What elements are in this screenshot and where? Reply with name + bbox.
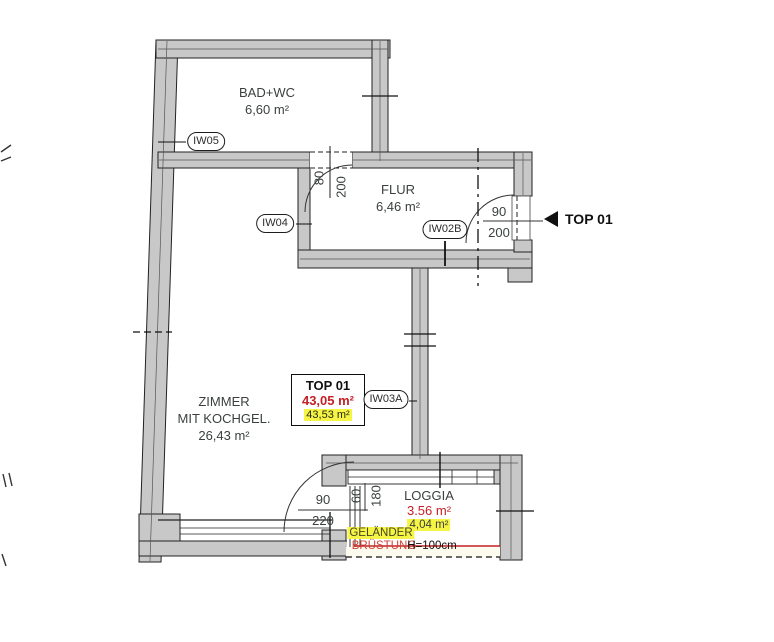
dim-entry-door-width: 90 — [492, 203, 506, 220]
edge-artifact — [1, 145, 12, 566]
wall-flur-left — [298, 168, 310, 252]
wall-tag-iw03a: IW03A — [363, 390, 408, 409]
room-name: LOGGIA — [404, 488, 454, 503]
wall-entry-step — [508, 268, 532, 282]
room-name: FLUR — [376, 181, 420, 198]
floor-plan: BAD+WC 6,60 m² FLUR 6,46 m² ZIMMER MIT K… — [0, 0, 774, 642]
railing-height: H=100cm — [407, 538, 457, 555]
room-name: ZIMMER — [178, 393, 271, 410]
dim-entry-door-height: 200 — [488, 224, 510, 241]
room-label-flur: FLUR 6,46 m² — [376, 181, 420, 215]
wall-tag-iw04: IW04 — [256, 214, 294, 233]
room-area: 6,46 m² — [376, 198, 420, 215]
room-area: 26,43 m² — [178, 427, 271, 444]
room-label-zimmer: ZIMMER MIT KOCHGEL. 26,43 m² — [178, 393, 271, 444]
wall-tag-iw05: IW05 — [187, 132, 225, 151]
dim-loggia-door-height: 220 — [312, 512, 334, 529]
dim-bad-door-height: 200 — [334, 176, 349, 198]
entry-arrow-icon — [544, 211, 558, 227]
wall-loggia-topleft-block — [322, 455, 346, 486]
unit-area-weighted: 43,05 m² — [292, 393, 364, 409]
room-area: 6,60 m² — [239, 101, 295, 118]
dim-loggia-door-width: 90 — [316, 491, 330, 508]
entry-label: TOP 01 — [565, 211, 613, 227]
room-area-red: 3.56 m² — [404, 503, 454, 518]
dim-loggia-window-height: 180 — [369, 485, 384, 507]
dim-bad-door-width: 80 — [312, 171, 327, 185]
wall-entry-right-bottom — [514, 240, 532, 252]
unit-title: TOP 01 — [292, 378, 364, 393]
wall-tag-iw02b: IW02B — [422, 220, 467, 239]
dim-loggia-window-width: 60 — [349, 489, 364, 503]
wall-bottom-face — [139, 541, 350, 556]
unit-summary-box: TOP 01 43,05 m² 43,53 m² — [291, 374, 365, 426]
room-label-bad-wc: BAD+WC 6,60 m² — [239, 84, 295, 118]
room-name: MIT KOCHGEL. — [178, 410, 271, 427]
room-name: BAD+WC — [239, 84, 295, 101]
wall-bottom-corner — [139, 514, 180, 541]
unit-area-total: 43,53 m² — [292, 409, 364, 422]
